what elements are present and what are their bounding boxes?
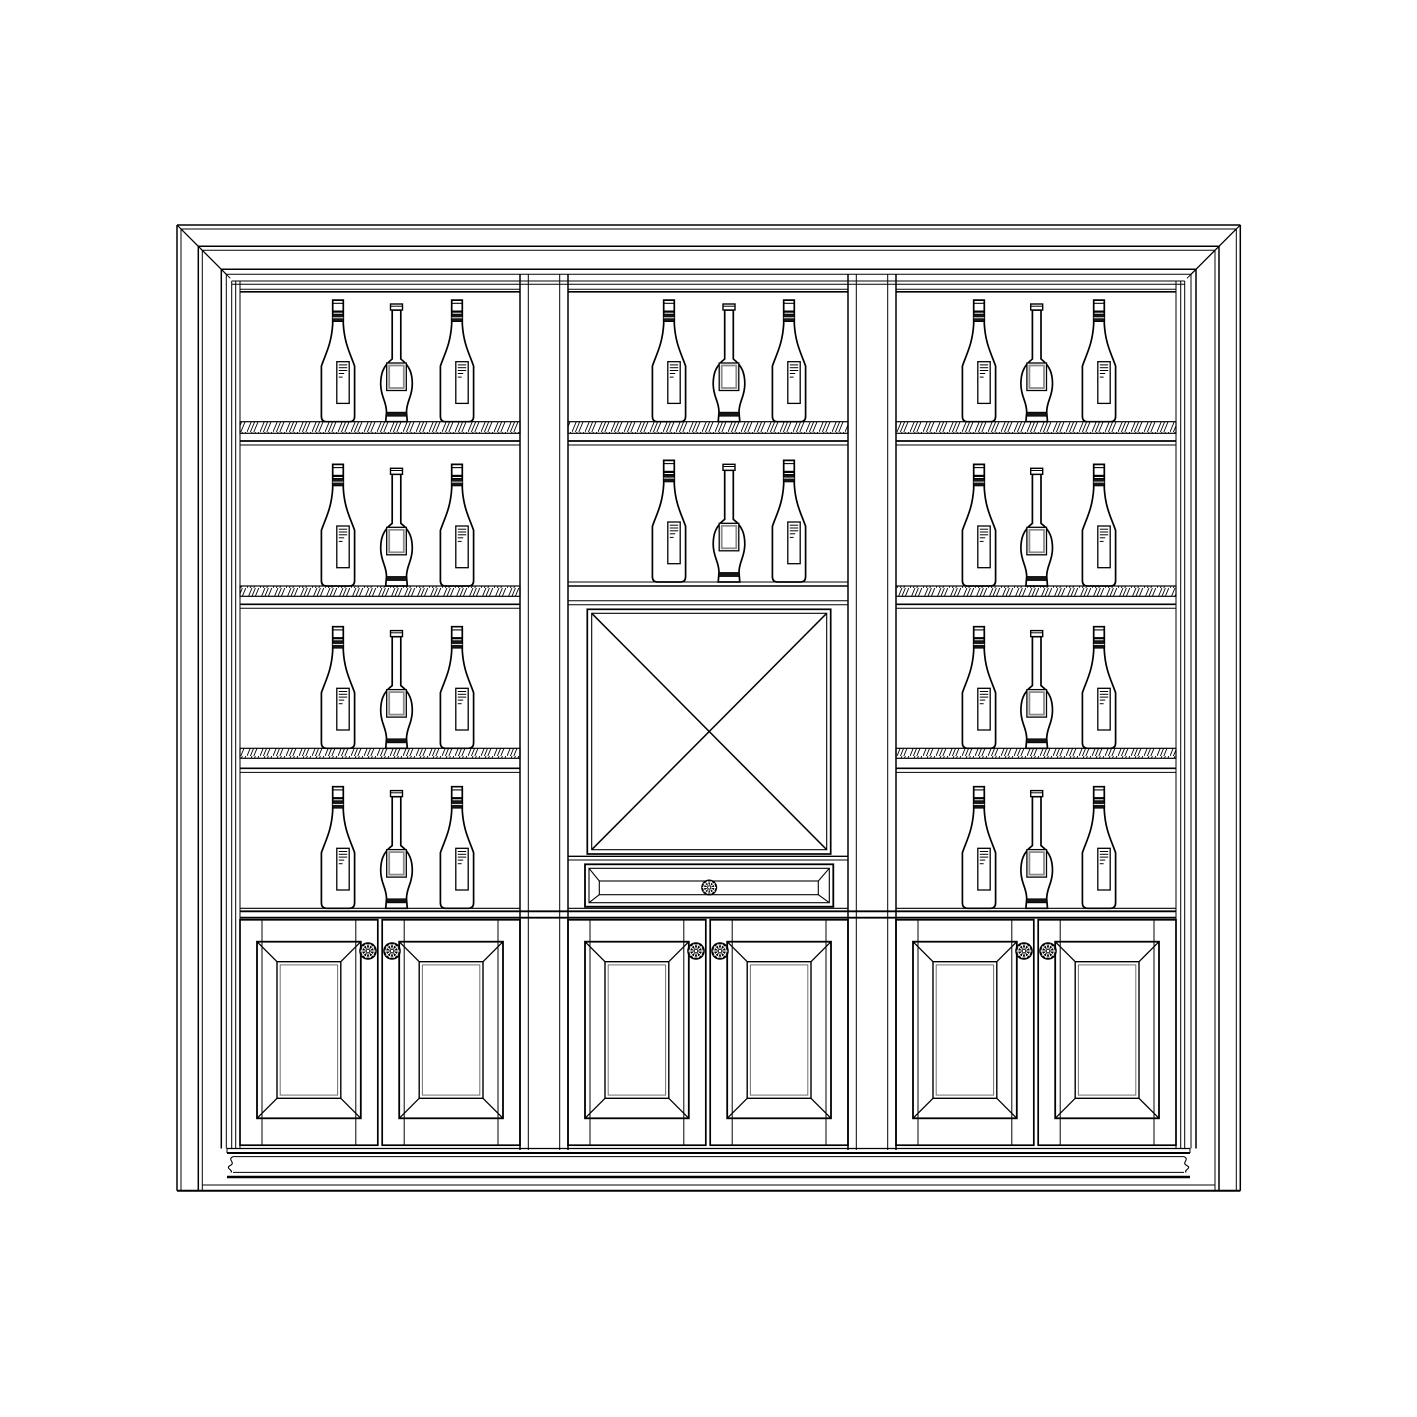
decanter-bottle [381, 468, 413, 586]
wine-bottle [1082, 627, 1115, 749]
bottle-label [978, 688, 990, 730]
bottle-label [978, 526, 990, 568]
bottle-label [387, 527, 407, 555]
bottle-label [456, 688, 468, 730]
wine-bottle [772, 460, 805, 582]
bottle-label [337, 848, 349, 890]
cabinet-door [568, 920, 706, 1145]
wine-bottle [1082, 787, 1115, 909]
door-knob [1015, 942, 1033, 960]
hatched-shelf [240, 586, 520, 608]
bottle-label [1027, 363, 1047, 391]
decanter-bottle [1021, 304, 1053, 422]
stile-center-right [848, 274, 896, 1150]
wine-bottle [440, 464, 473, 586]
counter-band [240, 911, 1176, 917]
bottle-label [387, 690, 407, 718]
bottle-label [1027, 690, 1047, 718]
cabinet-door [240, 920, 378, 1145]
bottle-label [788, 522, 800, 564]
door-pair-center [568, 920, 848, 1145]
bottle-label [456, 526, 468, 568]
wine-bottle [652, 300, 685, 422]
wine-bottle [321, 300, 354, 422]
wine-bottle [1082, 300, 1115, 422]
casing-miter-joints [177, 225, 1240, 278]
bottle-label [456, 362, 468, 404]
bottle-label [1098, 848, 1110, 890]
door-knob [711, 942, 729, 960]
door-knob [1039, 942, 1057, 960]
bottle-label [1098, 688, 1110, 730]
wine-bottle [962, 464, 995, 586]
hatched-shelf [896, 422, 1176, 445]
wine-bottle [321, 464, 354, 586]
bottle-label [1098, 362, 1110, 404]
door-raised-panel [399, 942, 503, 1119]
wine-bottle [772, 300, 805, 422]
cabinet-door [382, 920, 520, 1145]
decanter-bottle [381, 631, 413, 749]
door-pair-left [240, 920, 520, 1145]
cabinet-elevation-drawing [0, 0, 1417, 1417]
bottle-label [387, 850, 407, 878]
base-molding [177, 1149, 1240, 1191]
bottle-label [1027, 850, 1047, 878]
decanter-bottle [381, 304, 413, 422]
door-pair-right [896, 920, 1176, 1145]
decanter-bottle [713, 304, 745, 422]
decanter-bottle [1021, 791, 1053, 909]
hatched-shelf [896, 586, 1176, 608]
decanter-bottle [1021, 468, 1053, 586]
door-knob [687, 942, 705, 960]
cabinet-door [1038, 920, 1176, 1145]
decanter-bottle [713, 464, 745, 582]
stile-left-center [520, 274, 568, 1150]
drawer-knob [701, 880, 717, 896]
wine-bottle [1082, 464, 1115, 586]
bottle-label [719, 523, 739, 551]
wine-bottle [962, 787, 995, 909]
decanter-bottle [381, 791, 413, 909]
door-knob [359, 942, 377, 960]
wine-bottle [652, 460, 685, 582]
wine-bottle [962, 627, 995, 749]
wine-bottle [440, 300, 473, 422]
bottle-label [719, 363, 739, 391]
door-raised-panel [585, 942, 689, 1119]
hatched-shelf [240, 422, 520, 445]
molding-end-profile-right [1184, 1157, 1189, 1173]
center-drawer [585, 864, 833, 906]
top-rail [568, 289, 848, 292]
bottle-label [668, 362, 680, 404]
cabinet-door [896, 920, 1034, 1145]
door-raised-panel [727, 942, 831, 1119]
bottle-label [456, 848, 468, 890]
wine-bottle [962, 300, 995, 422]
door-knob [383, 942, 401, 960]
cabinet-door [710, 920, 848, 1145]
bottle-label [337, 362, 349, 404]
door-raised-panel [257, 942, 361, 1119]
bottle-label [978, 362, 990, 404]
bottle-label [978, 848, 990, 890]
bottle-label [1098, 526, 1110, 568]
elevation-svg [0, 0, 1417, 1417]
x-brace-diagonals [592, 613, 827, 849]
hatched-shelf [568, 422, 848, 445]
hatched-shelf [896, 748, 1176, 772]
top-rail [240, 289, 520, 292]
top-rail [896, 289, 1176, 292]
bottle-label [668, 522, 680, 564]
bottle-label [337, 526, 349, 568]
bottle-label [1027, 527, 1047, 555]
bottle-label [788, 362, 800, 404]
decanter-bottle [1021, 631, 1053, 749]
door-raised-panel [1055, 942, 1159, 1119]
bottle-label [387, 363, 407, 391]
door-raised-panel [913, 942, 1017, 1119]
molding-end-profile-left [228, 1157, 233, 1173]
hatched-shelf [240, 748, 520, 772]
wine-rack-x-panel [568, 582, 848, 860]
wine-bottle [440, 787, 473, 909]
wine-bottle [321, 787, 354, 909]
wine-bottle [440, 627, 473, 749]
wine-bottle [321, 627, 354, 749]
bottle-label [337, 688, 349, 730]
